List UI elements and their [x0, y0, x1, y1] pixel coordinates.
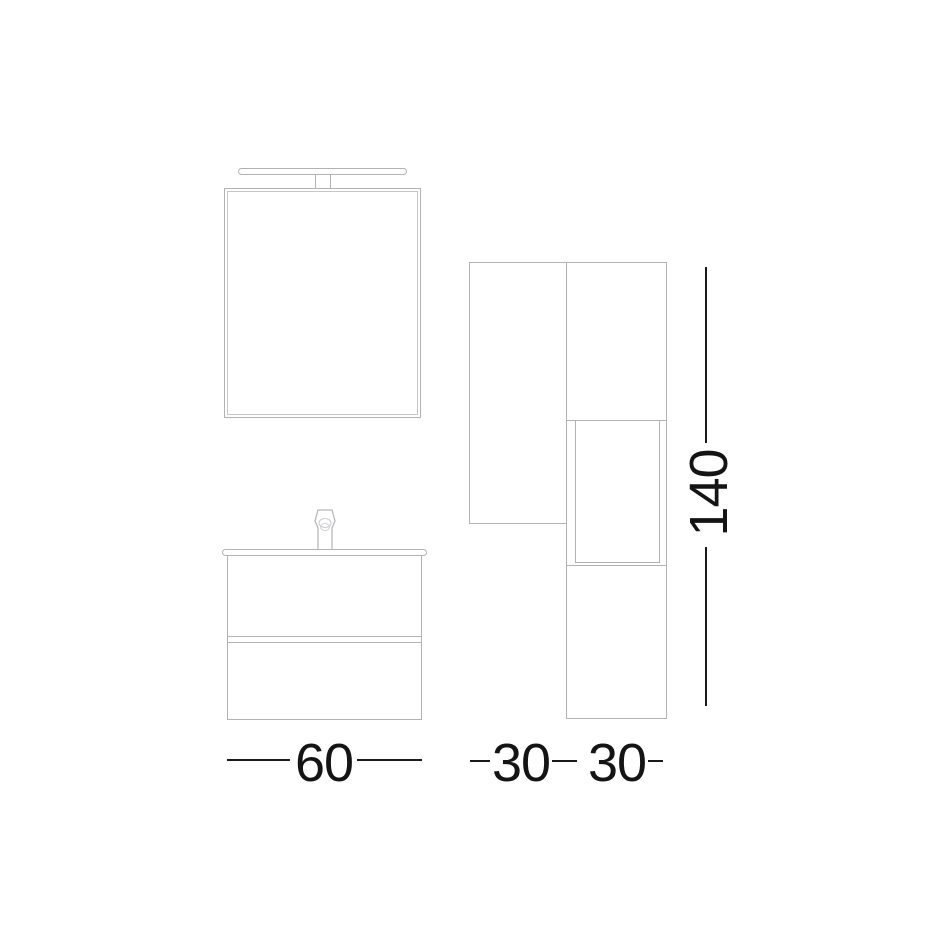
mirror-cabinet	[224, 188, 421, 418]
dim-140-segment-bottom	[705, 547, 707, 706]
vanity-cabinet	[227, 555, 422, 720]
dim-60-segment-right	[357, 759, 422, 761]
dim-60-label: 60	[295, 736, 353, 790]
dim-30-segment-middle	[552, 760, 577, 762]
drawer-divider-upper	[228, 636, 421, 637]
dim-30-segment-left	[470, 760, 490, 762]
dim-60-segment-left	[227, 759, 290, 761]
column-divider-line	[567, 565, 666, 566]
drawer-divider-lower	[228, 642, 421, 643]
technical-drawing-canvas: 60 30 30 140	[0, 0, 950, 950]
dim-30-right-label: 30	[588, 736, 646, 790]
dim-30-segment-right	[648, 760, 663, 762]
dim-30-left-label: 30	[492, 736, 550, 790]
column-door-panel	[575, 420, 660, 563]
mirror-inner-frame	[227, 191, 418, 415]
faucet-icon	[308, 507, 342, 551]
dim-140-segment-top	[705, 267, 707, 443]
light-fixture-stem	[315, 174, 331, 189]
wall-cabinet-side	[469, 262, 567, 524]
dim-140-label: 140	[682, 449, 736, 536]
